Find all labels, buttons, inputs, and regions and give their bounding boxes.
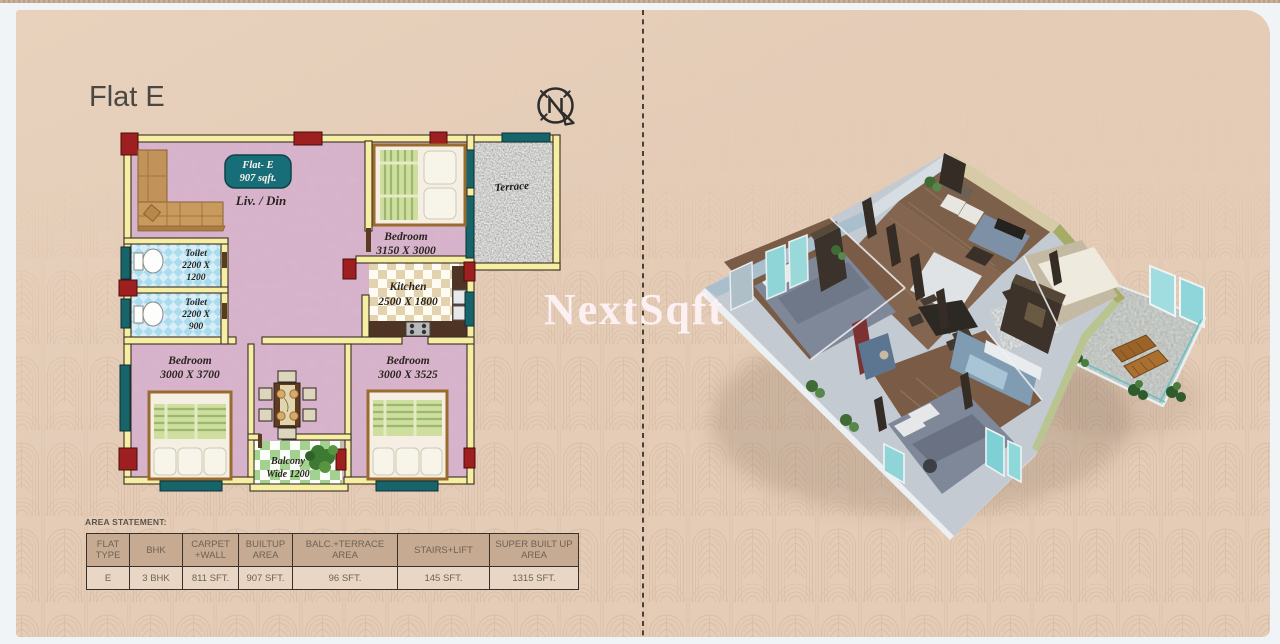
svg-text:907 sqft.: 907 sqft.: [240, 173, 277, 184]
svg-text:3000 X 3525: 3000 X 3525: [377, 369, 438, 381]
svg-text:3000 X 3700: 3000 X 3700: [159, 369, 220, 381]
svg-text:3150 X 3000: 3150 X 3000: [375, 245, 436, 257]
svg-text:900: 900: [189, 322, 204, 332]
svg-text:Toilet: Toilet: [185, 298, 207, 308]
svg-text:Wide 1200: Wide 1200: [266, 469, 309, 480]
svg-text:2200 X: 2200 X: [181, 310, 210, 320]
svg-text:Terrace: Terrace: [494, 180, 529, 194]
svg-text:2200 X: 2200 X: [181, 261, 210, 271]
svg-text:2500 X 1800: 2500 X 1800: [377, 296, 438, 308]
svg-text:Bedroom: Bedroom: [167, 355, 212, 367]
svg-text:1200: 1200: [187, 273, 206, 283]
svg-text:Bedroom: Bedroom: [385, 355, 430, 367]
svg-text:Kitchen: Kitchen: [388, 281, 426, 293]
svg-text:Toilet: Toilet: [185, 249, 207, 259]
svg-text:Flat- E: Flat- E: [241, 160, 273, 171]
svg-text:Liv. / Din: Liv. / Din: [235, 193, 286, 208]
svg-text:Balcony: Balcony: [270, 456, 305, 467]
svg-text:Bedroom: Bedroom: [383, 231, 428, 243]
